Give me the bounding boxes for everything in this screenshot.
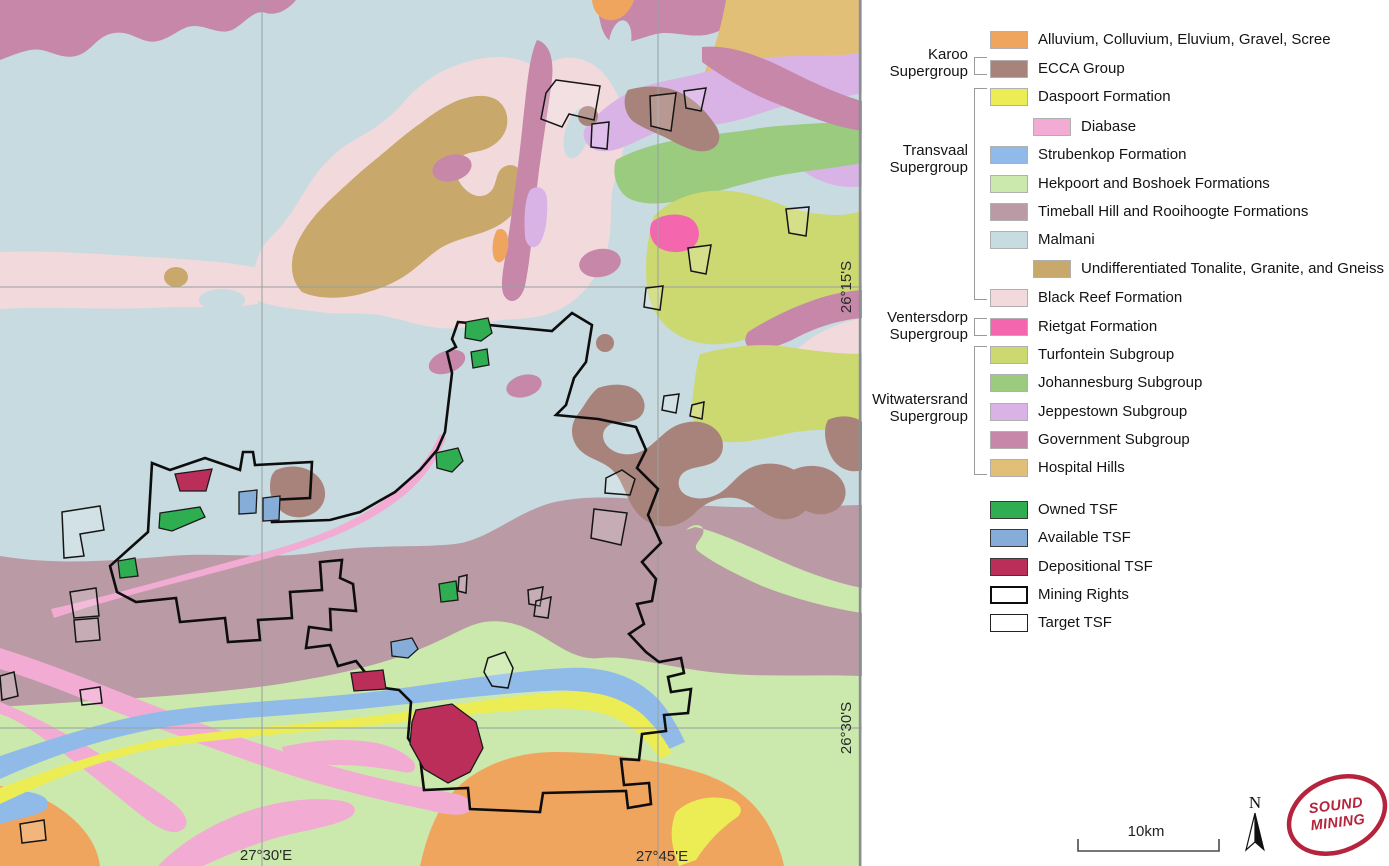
- legend-item-alluvium: Alluvium, Colluvium, Eluvium, Gravel, Sc…: [990, 30, 1331, 50]
- strubenkop-swatch: [990, 146, 1028, 164]
- scale-bar-line: [1078, 839, 1219, 851]
- north-arrow-right-half: [1255, 813, 1264, 850]
- target-tsf-outline: [20, 820, 46, 843]
- group-label-line: Supergroup: [810, 326, 968, 343]
- legend-label: Daspoort Formation: [1038, 88, 1171, 106]
- depositional-tsf-polygon: [351, 670, 386, 691]
- legend-label: Depositional TSF: [1038, 558, 1153, 576]
- legend-group-witwatersrand: Witwatersrand Supergroup: [810, 391, 968, 425]
- group-label-line: Karoo: [810, 46, 968, 63]
- geological-map: 27°30'E 27°45'E 26°15'S 26°30'S: [0, 0, 862, 866]
- ecca-swatch: [990, 60, 1028, 78]
- legend-label: Owned TSF: [1038, 501, 1118, 519]
- logo-line1: SOUND: [1308, 795, 1364, 818]
- legend-group-transvaal: Transvaal Supergroup: [810, 142, 968, 176]
- target-tsf-outline: [591, 509, 627, 545]
- legend-label: Rietgat Formation: [1038, 318, 1157, 336]
- legend-group-karoo: Karoo Supergroup: [810, 46, 968, 80]
- group-label-line: Supergroup: [810, 159, 968, 176]
- target-tsf-outline: [644, 286, 663, 310]
- group-label-line: Transvaal: [810, 142, 968, 159]
- legend-label: Diabase: [1081, 118, 1136, 136]
- blackreef-swatch: [990, 289, 1028, 307]
- legend-label: Available TSF: [1038, 529, 1131, 547]
- legend-item-available-tsf: Available TSF: [990, 528, 1131, 548]
- legend-label: Hekpoort and Boshoek Formations: [1038, 175, 1270, 193]
- north-arrow-left-half: [1246, 813, 1255, 850]
- owned-tsf-polygon: [471, 349, 489, 368]
- logo-oval-icon: [1277, 762, 1389, 866]
- region-ecca-dot: [596, 334, 614, 352]
- target-tsf-outline: [74, 618, 100, 642]
- target-tsf-outline: [650, 93, 676, 131]
- logo-text: SOUND MINING: [1308, 795, 1366, 834]
- lon-label-27-45E: 27°45'E: [636, 848, 688, 865]
- scale-bar-label: 10km: [1128, 823, 1165, 840]
- lat-label-26-30S: 26°30'S: [838, 702, 855, 754]
- legend-item-malmani: Malmani: [990, 230, 1095, 250]
- legend-label: Undifferentiated Tonalite, Granite, and …: [1081, 260, 1384, 278]
- depositional-tsf-swatch: [990, 558, 1028, 576]
- legend-item-daspoort: Daspoort Formation: [990, 87, 1171, 107]
- alluvium-swatch: [990, 31, 1028, 49]
- johannesburg-swatch: [990, 374, 1028, 392]
- target-tsf-outline: [534, 597, 551, 618]
- legend-item-ecca: ECCA Group: [990, 59, 1125, 79]
- north-arrow: N: [1246, 793, 1264, 850]
- legend-label: Hospital Hills: [1038, 459, 1125, 477]
- legend-item-strubenkop: Strubenkop Formation: [990, 145, 1186, 165]
- legend-label: Black Reef Formation: [1038, 289, 1182, 307]
- legend-item-hekpoort: Hekpoort and Boshoek Formations: [990, 174, 1270, 194]
- legend-label: Johannesburg Subgroup: [1038, 374, 1202, 392]
- legend-item-hospital: Hospital Hills: [990, 458, 1125, 478]
- target-tsf-outline: [458, 575, 467, 593]
- region-tonalite-dot: [164, 267, 188, 287]
- lon-label-27-30E: 27°30'E: [240, 847, 292, 864]
- legend-label: Turfontein Subgroup: [1038, 346, 1174, 364]
- legend-item-timeball: Timeball Hill and Rooihoogte Formations: [990, 202, 1308, 222]
- owned-tsf-swatch: [990, 501, 1028, 519]
- legend-item-owned-tsf: Owned TSF: [990, 500, 1118, 520]
- target-tsf-outline: [591, 122, 609, 149]
- available-tsf-swatch: [990, 529, 1028, 547]
- north-arrow-label: N: [1249, 793, 1261, 812]
- diabase-swatch: [1033, 118, 1071, 136]
- available-tsf-polygon: [239, 490, 257, 514]
- mining-rights-swatch: [990, 586, 1028, 604]
- legend-label: Government Subgroup: [1038, 431, 1190, 449]
- target-tsf-outline: [690, 402, 704, 419]
- hekpoort-swatch: [990, 175, 1028, 193]
- legend-item-tonalite: Undifferentiated Tonalite, Granite, and …: [1033, 259, 1384, 279]
- legend-label: ECCA Group: [1038, 60, 1125, 78]
- government-swatch: [990, 431, 1028, 449]
- hospital-swatch: [990, 459, 1028, 477]
- group-label-line: Supergroup: [810, 63, 968, 80]
- legend-label: Alluvium, Colluvium, Eluvium, Gravel, Sc…: [1038, 31, 1331, 49]
- target-tsf-outline: [662, 394, 679, 413]
- bracket-ventersdorp: [974, 318, 987, 336]
- target-tsf-swatch: [990, 614, 1028, 632]
- tonalite-swatch: [1033, 260, 1071, 278]
- jeppestown-swatch: [990, 403, 1028, 421]
- target-tsf-outline: [0, 672, 18, 700]
- legend-item-rietgat: Rietgat Formation: [990, 317, 1157, 337]
- bracket-karoo: [974, 57, 987, 75]
- turfontein-swatch: [990, 346, 1028, 364]
- legend-item-blackreef: Black Reef Formation: [990, 288, 1182, 308]
- legend-label: Target TSF: [1038, 614, 1112, 632]
- rietgat-swatch: [990, 318, 1028, 336]
- legend-item-diabase: Diabase: [1033, 117, 1136, 137]
- legend-group-ventersdorp: Ventersdorp Supergroup: [810, 309, 968, 343]
- legend-item-johannesburg: Johannesburg Subgroup: [990, 373, 1202, 393]
- geological-map-page: 27°30'E 27°45'E 26°15'S 26°30'S Karoo Su…: [0, 0, 1389, 866]
- legend-item-depositional-tsf: Depositional TSF: [990, 557, 1153, 577]
- group-label-line: Supergroup: [810, 408, 968, 425]
- legend-label: Strubenkop Formation: [1038, 146, 1186, 164]
- legend-item-target-tsf: Target TSF: [990, 613, 1112, 633]
- owned-tsf-polygon: [439, 581, 458, 602]
- sound-mining-logo: SOUND MINING: [1277, 762, 1389, 866]
- target-tsf-outline: [80, 687, 102, 705]
- owned-tsf-polygon: [118, 558, 138, 578]
- bracket-transvaal: [974, 88, 987, 300]
- legend-label: Jeppestown Subgroup: [1038, 403, 1187, 421]
- legend-item-government: Government Subgroup: [990, 430, 1190, 450]
- lat-label-26-15S: 26°15'S: [838, 261, 855, 313]
- map-canvas: 27°30'E 27°45'E 26°15'S 26°30'S: [0, 0, 862, 866]
- timeball-swatch: [990, 203, 1028, 221]
- target-tsf-outline: [786, 207, 809, 236]
- legend-label: Timeball Hill and Rooihoogte Formations: [1038, 203, 1308, 221]
- legend-item-mining-rights: Mining Rights: [990, 585, 1129, 605]
- bracket-witwatersrand: [974, 346, 987, 475]
- group-label-line: Ventersdorp: [810, 309, 968, 326]
- legend-item-turfontein: Turfontein Subgroup: [990, 345, 1174, 365]
- legend-item-jeppestown: Jeppestown Subgroup: [990, 402, 1187, 422]
- group-label-line: Witwatersrand: [810, 391, 968, 408]
- target-tsf-outline: [70, 588, 99, 618]
- available-tsf-polygon: [263, 496, 280, 521]
- legend-label: Mining Rights: [1038, 586, 1129, 604]
- region-malmani-blob: [199, 289, 245, 311]
- malmani-swatch: [990, 231, 1028, 249]
- scale-bar: 10km: [1078, 823, 1219, 851]
- daspoort-swatch: [990, 88, 1028, 106]
- logo-line2: MINING: [1310, 812, 1366, 835]
- legend-label: Malmani: [1038, 231, 1095, 249]
